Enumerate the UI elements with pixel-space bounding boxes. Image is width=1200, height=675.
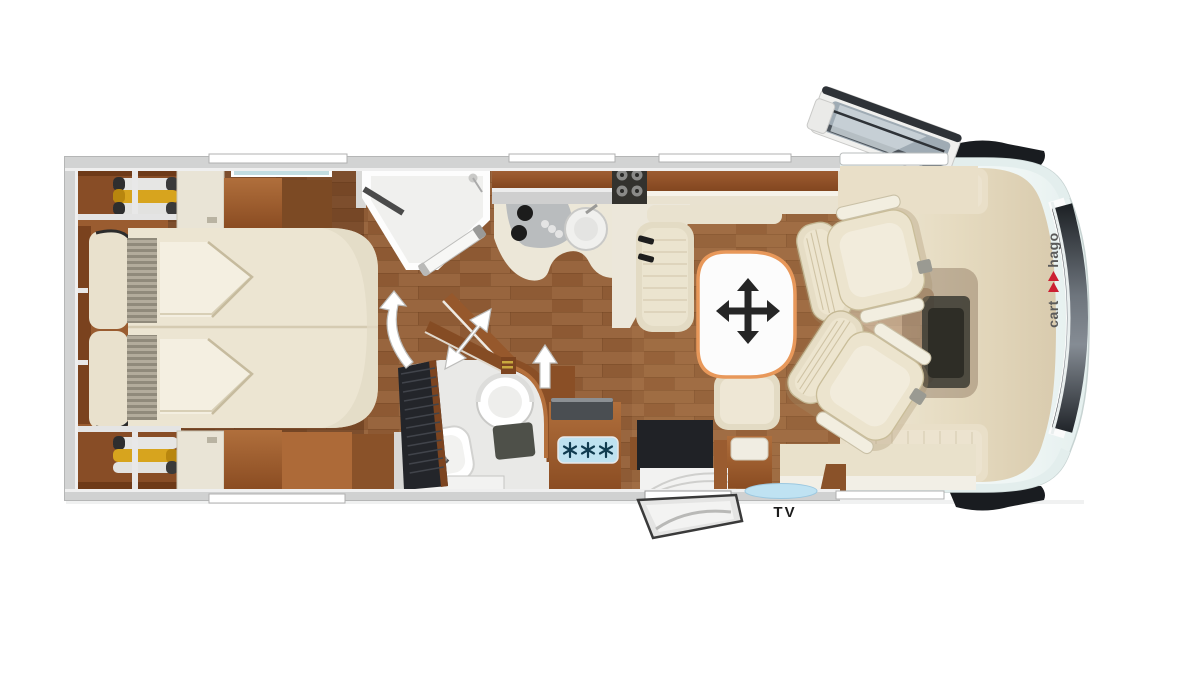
svg-text:TV: TV [773,504,796,521]
svg-text:hago: hago [1045,232,1061,267]
svg-text:cart: cart [1045,300,1061,328]
